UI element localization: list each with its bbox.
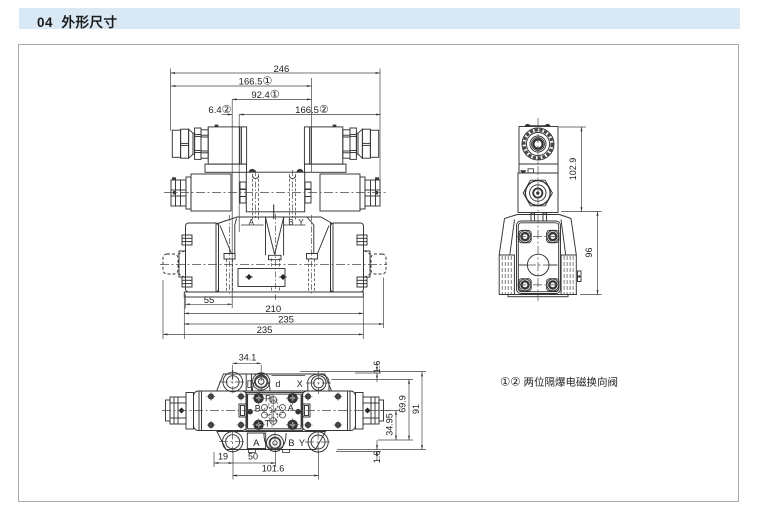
svg-text:X: X xyxy=(297,379,303,389)
svg-text:T: T xyxy=(265,419,271,429)
svg-text:6.4②: 6.4② xyxy=(208,104,231,116)
svg-text:A: A xyxy=(253,438,260,449)
svg-text:69.9: 69.9 xyxy=(398,395,408,413)
svg-text:19: 19 xyxy=(218,452,228,462)
svg-text:91: 91 xyxy=(411,404,421,414)
svg-text:166.5②: 166.5② xyxy=(295,104,329,116)
svg-text:101.6: 101.6 xyxy=(262,464,285,474)
svg-text:235: 235 xyxy=(278,314,294,325)
svg-text:B: B xyxy=(288,218,293,227)
svg-text:102.9: 102.9 xyxy=(568,158,578,181)
svg-text:34.95: 34.95 xyxy=(385,413,395,436)
svg-text:B: B xyxy=(255,403,261,413)
svg-text:1.6: 1.6 xyxy=(372,361,382,374)
svg-text:A: A xyxy=(288,403,294,413)
svg-text:d: d xyxy=(275,379,280,389)
svg-text:55: 55 xyxy=(204,295,215,306)
svg-text:210: 210 xyxy=(265,304,281,315)
svg-text:50: 50 xyxy=(248,452,258,462)
svg-text:Y: Y xyxy=(298,218,304,227)
svg-text:P: P xyxy=(265,394,271,404)
svg-text:166.5①: 166.5① xyxy=(239,76,273,88)
svg-text:92.4①: 92.4① xyxy=(251,89,280,101)
svg-text:A: A xyxy=(249,218,255,227)
svg-text:34.1: 34.1 xyxy=(239,353,257,363)
svg-text:Y: Y xyxy=(299,438,306,449)
svg-text:B: B xyxy=(288,438,294,449)
svg-text:235: 235 xyxy=(257,325,273,336)
svg-text:1.6: 1.6 xyxy=(372,451,382,464)
svg-text:96: 96 xyxy=(584,247,594,257)
svg-text:①② 两位隔爆电磁换向阀: ①② 两位隔爆电磁换向阀 xyxy=(500,376,618,389)
svg-text:246: 246 xyxy=(273,64,289,75)
